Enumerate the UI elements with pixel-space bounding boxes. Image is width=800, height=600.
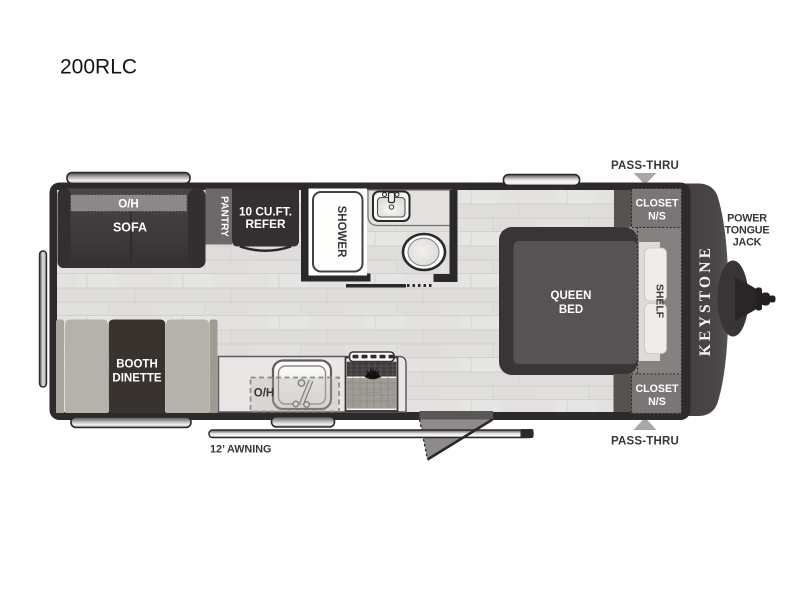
svg-text:SOFA: SOFA [113, 221, 147, 235]
svg-text:POWER: POWER [727, 213, 767, 225]
svg-text:12’ AWNING: 12’ AWNING [210, 444, 271, 456]
svg-text:PASS-THRU: PASS-THRU [611, 160, 679, 172]
svg-text:PANTRY: PANTRY [219, 196, 230, 237]
svg-text:BED: BED [559, 304, 583, 316]
svg-text:O/H: O/H [118, 199, 138, 211]
svg-text:CLOSET: CLOSET [636, 383, 679, 395]
svg-text:O/H: O/H [254, 388, 274, 400]
svg-text:N/S: N/S [648, 396, 666, 408]
svg-text:200RLC: 200RLC [60, 56, 137, 79]
svg-text:REFER: REFER [246, 217, 286, 231]
svg-text:QUEEN: QUEEN [551, 290, 592, 302]
svg-text:KEYSTONE: KEYSTONE [697, 245, 714, 356]
svg-text:TONGUE: TONGUE [725, 225, 770, 237]
svg-text:PASS-THRU: PASS-THRU [611, 436, 679, 448]
svg-text:CLOSET: CLOSET [636, 198, 679, 210]
svg-text:SHELF: SHELF [654, 284, 665, 318]
svg-text:SHOWER: SHOWER [335, 206, 347, 258]
svg-text:BOOTH: BOOTH [116, 359, 158, 371]
svg-text:DINETTE: DINETTE [112, 373, 162, 385]
svg-text:N/S: N/S [648, 211, 666, 223]
svg-text:JACK: JACK [733, 237, 762, 249]
